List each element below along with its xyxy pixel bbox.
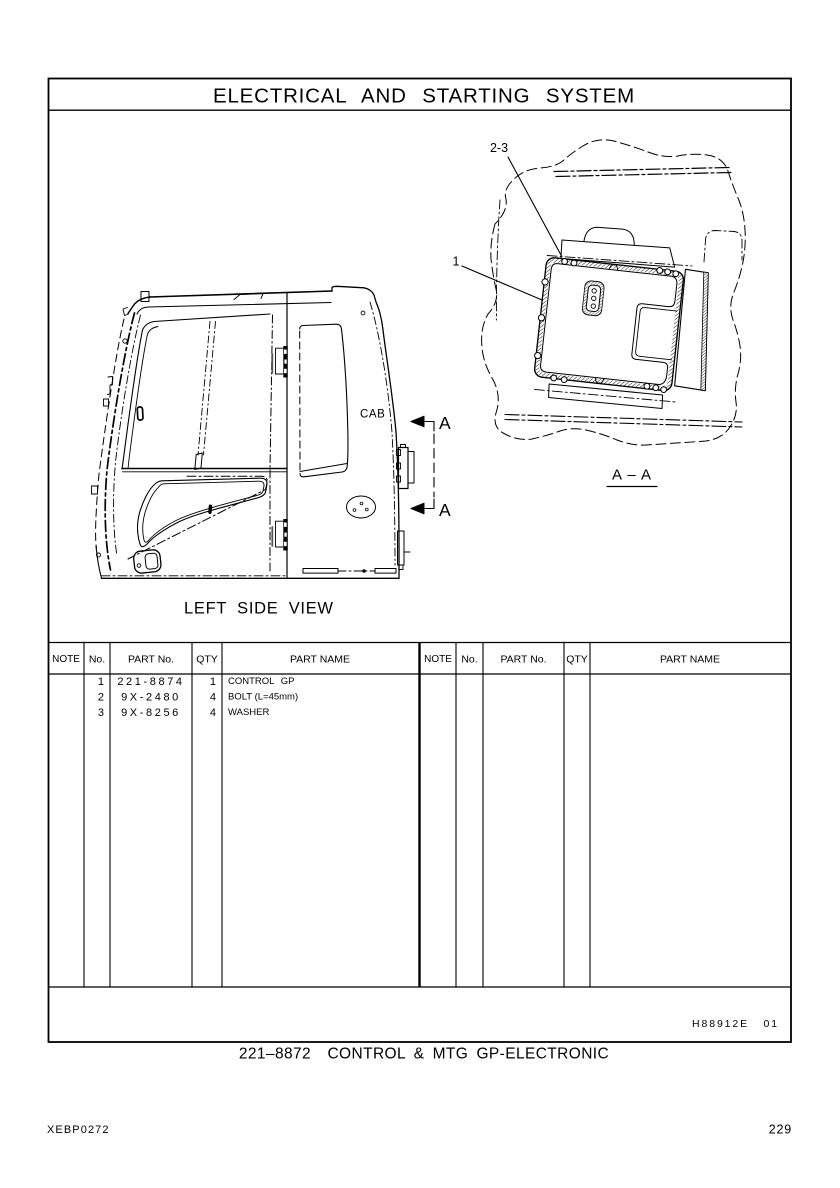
svg-text:229: 229 [769,1123,792,1137]
svg-text:H88912E 01: H88912E 01 [692,1018,779,1030]
svg-text:LEFT SIDE VIEW: LEFT SIDE VIEW [184,600,334,618]
svg-text:1: 1 [453,255,460,269]
svg-text:QTY: QTY [566,654,588,666]
svg-text:PART NAME: PART NAME [660,654,720,666]
svg-text:221–8872 CONTROL & MTG GP-ELE: 221–8872 CONTROL & MTG GP-ELECTRONIC [239,1046,609,1063]
svg-text:221-8874: 221-8874 [117,676,184,688]
svg-text:PART NAME: PART NAME [290,654,350,666]
svg-text:QTY: QTY [196,654,218,666]
svg-text:ELECTRICAL AND STARTING SYSTEM: ELECTRICAL AND STARTING SYSTEM [213,85,635,108]
svg-text:9X-8256: 9X-8256 [121,707,181,719]
svg-text:A: A [439,500,451,520]
svg-text:BOLT (L=45mm): BOLT (L=45mm) [228,692,298,703]
svg-text:4: 4 [210,707,216,719]
svg-text:NOTE: NOTE [52,654,80,665]
svg-text:2: 2 [98,692,104,704]
svg-text:A: A [439,413,451,433]
svg-text:1: 1 [98,676,104,688]
svg-text:3: 3 [98,707,104,719]
svg-text:PART No.: PART No. [128,654,174,666]
svg-text:4: 4 [210,692,216,704]
svg-text:2-3: 2-3 [490,141,508,155]
svg-text:PART No.: PART No. [500,654,546,666]
svg-text:NOTE: NOTE [424,654,452,665]
svg-text:XEBP0272: XEBP0272 [47,1124,110,1136]
svg-text:No.: No. [461,654,477,666]
svg-text:No.: No. [89,654,105,666]
svg-text:1: 1 [210,676,216,688]
svg-text:CONTROL GP: CONTROL GP [228,676,294,687]
svg-text:CAB: CAB [360,409,385,421]
svg-text:A – A: A – A [612,467,652,484]
svg-text:WASHER: WASHER [228,707,269,718]
svg-text:9X-2480: 9X-2480 [121,692,181,704]
